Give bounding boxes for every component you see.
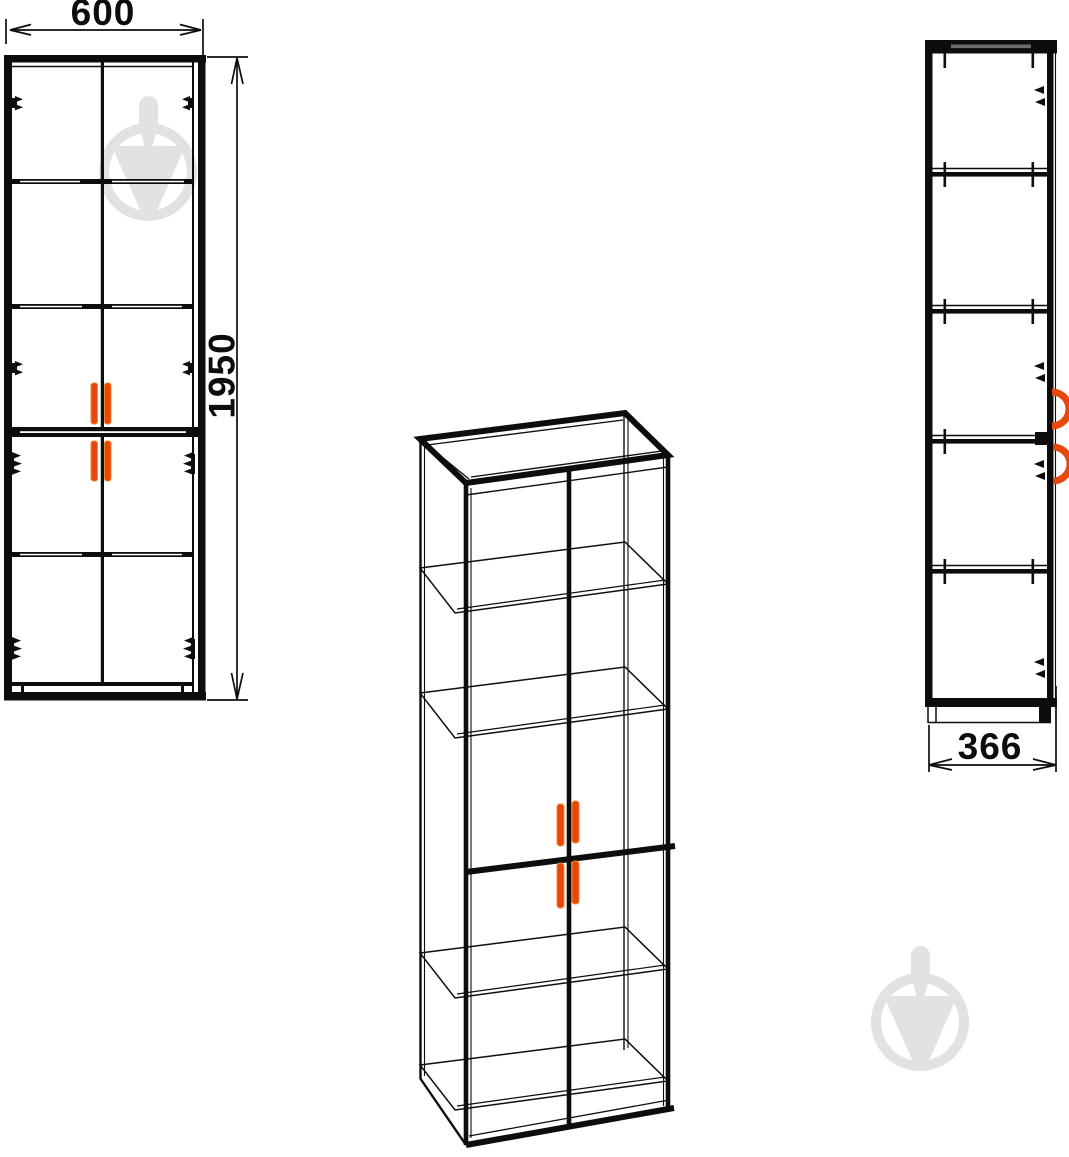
door-handle-bar bbox=[105, 383, 112, 424]
door-handle-bar bbox=[557, 804, 564, 846]
width-dimension-label: 600 bbox=[45, 0, 161, 31]
door-handle-arc bbox=[1052, 392, 1069, 426]
iso-base bbox=[420, 1039, 674, 1145]
hinge-icon bbox=[11, 361, 23, 375]
door-handle-bar bbox=[557, 863, 564, 908]
side-carcass bbox=[925, 40, 1057, 707]
hinge-icon bbox=[1034, 460, 1045, 480]
hinge-icon bbox=[183, 452, 195, 475]
front-door-gap bbox=[101, 62, 104, 682]
height-dimension-label: 1950 bbox=[204, 316, 241, 436]
side-door-handles bbox=[1052, 392, 1069, 481]
door-handle-bar bbox=[105, 441, 112, 481]
front-middle-divider bbox=[12, 427, 199, 437]
door-handle-bar bbox=[91, 441, 98, 481]
side-door-edge bbox=[1047, 40, 1054, 707]
front-carcass bbox=[4, 55, 206, 701]
side-middle-divider bbox=[932, 429, 1050, 454]
hinge-icon bbox=[1034, 658, 1045, 678]
iso-vertical-edges bbox=[421, 414, 669, 1145]
door-handle-bar bbox=[91, 383, 98, 424]
hinge-icon bbox=[1034, 362, 1045, 382]
front-shelves bbox=[12, 179, 199, 557]
hinge-icon bbox=[11, 96, 23, 110]
hinge-icon bbox=[183, 637, 195, 660]
side-view bbox=[915, 28, 1069, 783]
iso-top-face bbox=[420, 413, 668, 495]
door-handle-bar bbox=[572, 861, 579, 904]
hinge-icon bbox=[1034, 86, 1045, 106]
depth-dimension-label: 366 bbox=[930, 728, 1050, 765]
side-base bbox=[928, 707, 1051, 723]
door-handle-bar bbox=[572, 801, 579, 843]
iso-shelves bbox=[420, 542, 668, 998]
isometric-view bbox=[405, 400, 695, 1155]
hinge-icon bbox=[10, 637, 22, 660]
hinge-icon bbox=[10, 452, 22, 475]
watermark-trowel-icon-bottom-right bbox=[876, 946, 964, 1066]
front-plinth bbox=[12, 682, 193, 693]
furniture-dimension-drawing: 600 1950 366 bbox=[0, 0, 1069, 1157]
side-shelves bbox=[932, 162, 1050, 584]
